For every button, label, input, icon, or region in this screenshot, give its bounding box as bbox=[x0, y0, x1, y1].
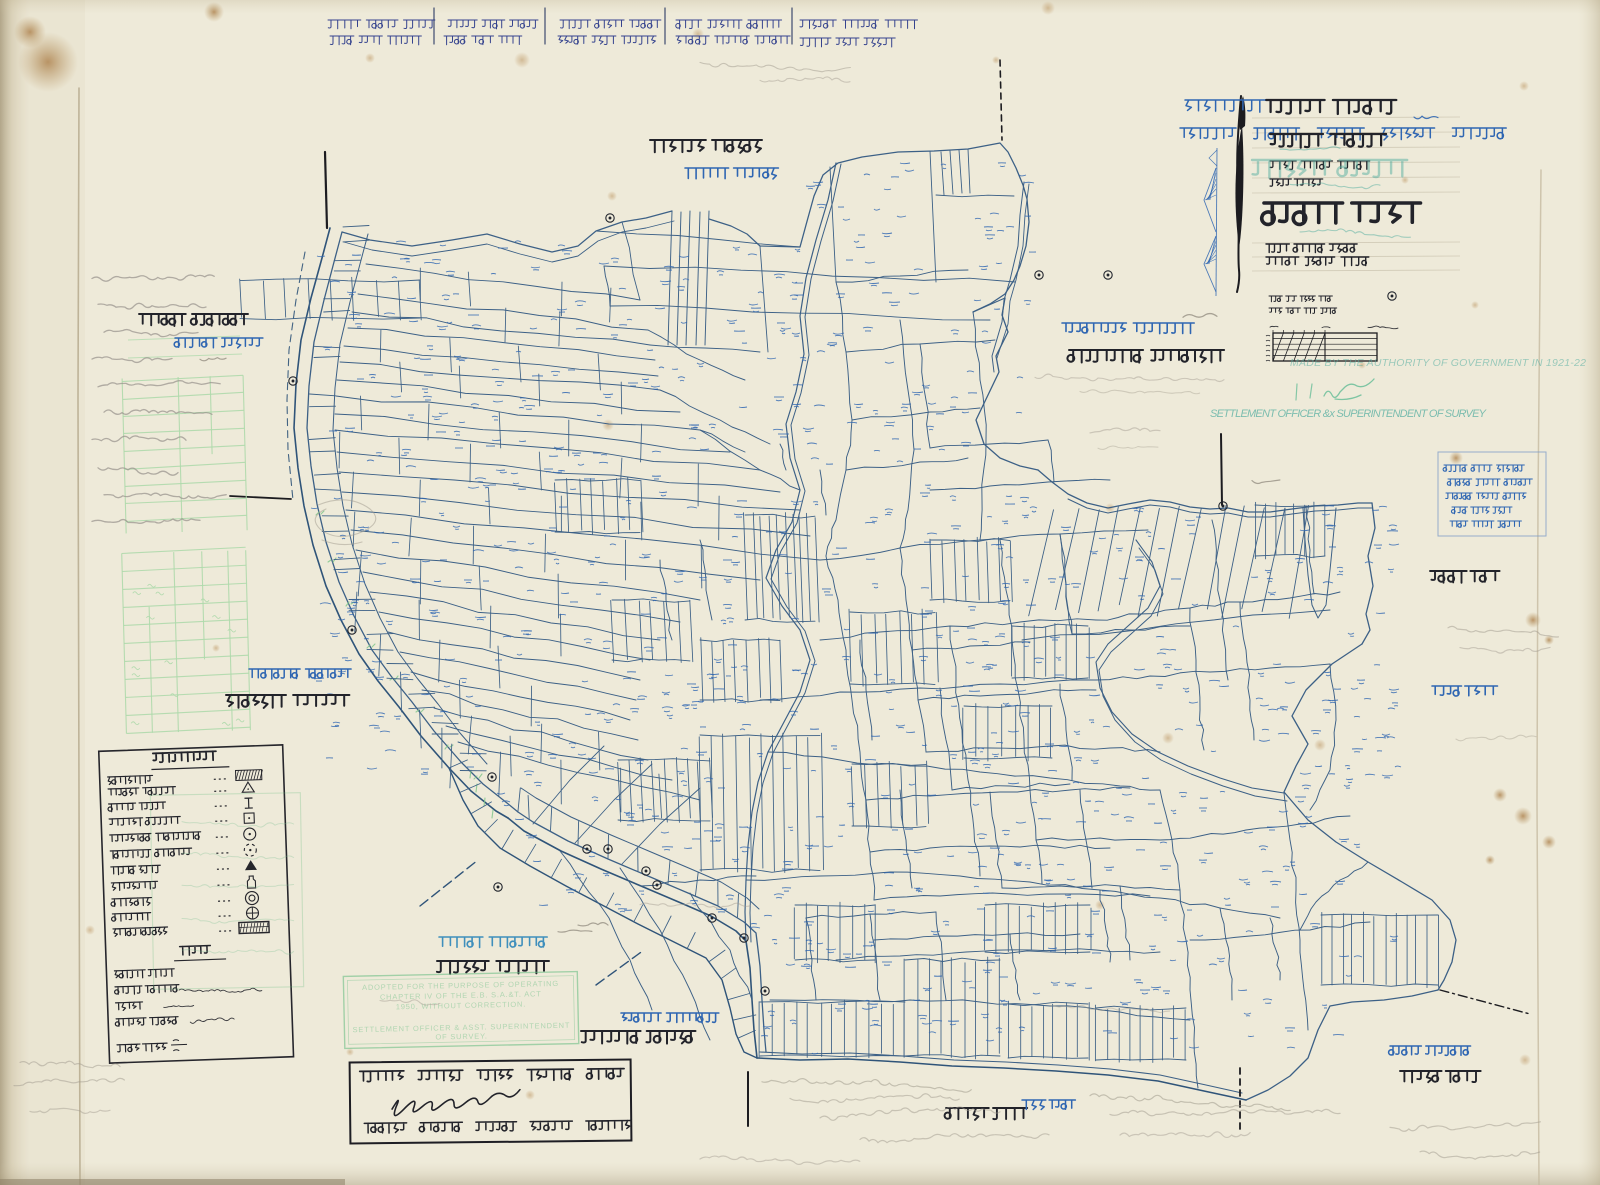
svg-text:OF SURVEY.: OF SURVEY. bbox=[435, 1031, 488, 1041]
svg-text:MADE BY THE AUTHORITY OF GOVER: MADE BY THE AUTHORITY OF GOVERNMENT IN 1… bbox=[1290, 357, 1586, 369]
svg-text:SETTLEMENT OFFICER &x SUPERIN: SETTLEMENT OFFICER &x SUPERINTENDENT OF … bbox=[1210, 408, 1487, 420]
